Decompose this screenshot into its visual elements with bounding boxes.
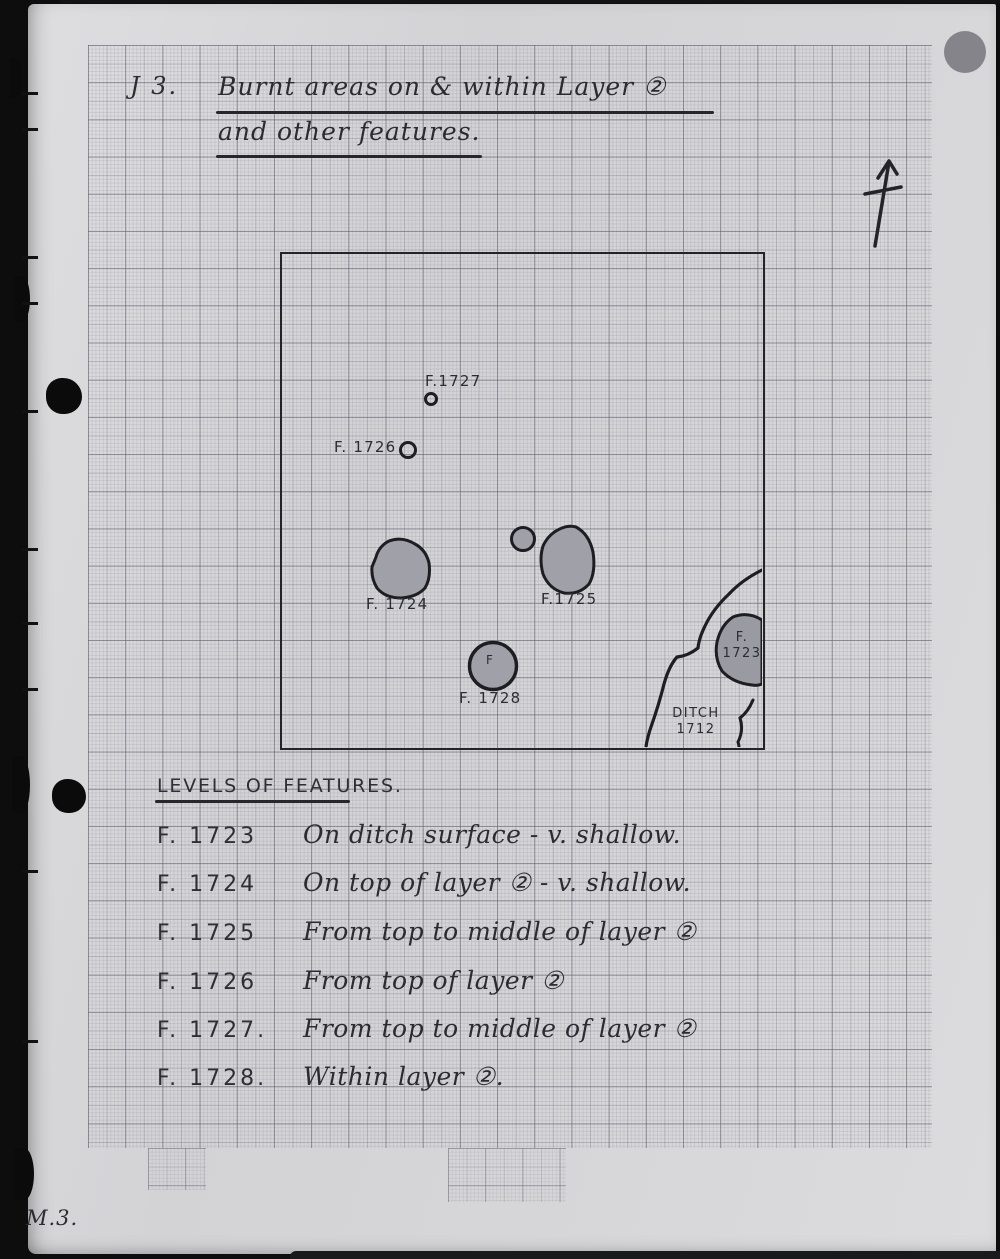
margin-tick — [22, 870, 38, 873]
feature-1727-shape — [426, 394, 437, 405]
margin-tick — [22, 688, 38, 691]
punch-hole — [46, 378, 82, 414]
level-row-desc: On ditch surface - v. shallow. — [303, 820, 681, 849]
graph-grid-patch — [448, 1148, 566, 1202]
feature-1725-label: F.1725 — [541, 590, 597, 608]
feature-1726-shape — [401, 443, 416, 458]
plan-frame — [280, 252, 765, 750]
title-underline — [216, 155, 482, 158]
feature-1723-label-line1: F. — [716, 630, 768, 646]
feature-1725-shape — [541, 526, 594, 593]
scan-top-strip — [60, 0, 1000, 3]
ditch-label-line1: DITCH — [658, 706, 734, 722]
feature-1723-label: F. 1723 — [716, 630, 768, 663]
scan-edge-mark — [14, 1148, 34, 1200]
page-title-line1: Burnt areas on & within Layer ② — [218, 72, 666, 101]
scan-edge-mark — [10, 58, 22, 98]
scanned-page: J 3. Burnt areas on & within Layer ② and… — [0, 0, 1000, 1259]
level-row-desc: On top of layer ② - v. shallow. — [303, 868, 691, 897]
margin-tick — [22, 622, 38, 625]
ditch-1712-label: DITCH 1712 — [658, 706, 734, 739]
graph-grid-patch — [148, 1148, 206, 1190]
level-row-id: F. 1728. — [157, 1066, 267, 1091]
margin-tick — [22, 128, 38, 131]
page-number: M.3. — [26, 1206, 78, 1230]
level-row-desc: From top to middle of layer ② — [303, 917, 696, 946]
level-row-id: F. 1723 — [157, 824, 257, 849]
small-burnt-spot-shape — [512, 528, 535, 551]
margin-tick — [22, 302, 38, 305]
margin-tick — [22, 256, 38, 259]
ditch-edge-line — [738, 700, 753, 747]
margin-tick — [22, 548, 38, 551]
feature-1727-label: F.1727 — [425, 372, 481, 390]
feature-1728-inner-letter: F — [486, 653, 494, 667]
level-row-id: F. 1727. — [157, 1018, 267, 1043]
margin-tick — [22, 410, 38, 413]
scan-edge-mark — [12, 756, 30, 814]
level-row-id: F. 1726 — [157, 970, 257, 995]
plan-drawing — [282, 254, 762, 747]
scan-edge-mark — [14, 276, 30, 322]
level-row-desc: From top to middle of layer ② — [303, 1014, 696, 1043]
level-row-id: F. 1724 — [157, 872, 257, 897]
margin-tick — [22, 92, 38, 95]
scan-bottom-strip — [290, 1251, 1000, 1259]
feature-1724-label: F. 1724 — [366, 595, 428, 613]
levels-heading: LEVELS OF FEATURES. — [157, 775, 403, 797]
level-row-desc: From top of layer ② — [303, 966, 564, 995]
punch-hole — [52, 779, 86, 813]
feature-1724-shape — [372, 539, 430, 598]
heading-underline — [155, 800, 350, 803]
north-arrow-icon — [845, 148, 915, 258]
level-row-desc: Within layer ②. — [303, 1062, 504, 1091]
feature-1726-label: F. 1726 — [334, 438, 396, 456]
ditch-label-line2: 1712 — [658, 722, 734, 738]
margin-tick — [22, 1040, 38, 1043]
feature-1728-label: F. 1728 — [459, 689, 521, 707]
level-row-id: F. 1725 — [157, 921, 257, 946]
page-title-line2: and other features. — [218, 117, 480, 146]
section-label: J 3. — [130, 72, 178, 100]
gray-sticker-dot — [944, 31, 986, 73]
title-underline — [216, 111, 714, 114]
feature-1723-label-line2: 1723 — [716, 646, 768, 662]
